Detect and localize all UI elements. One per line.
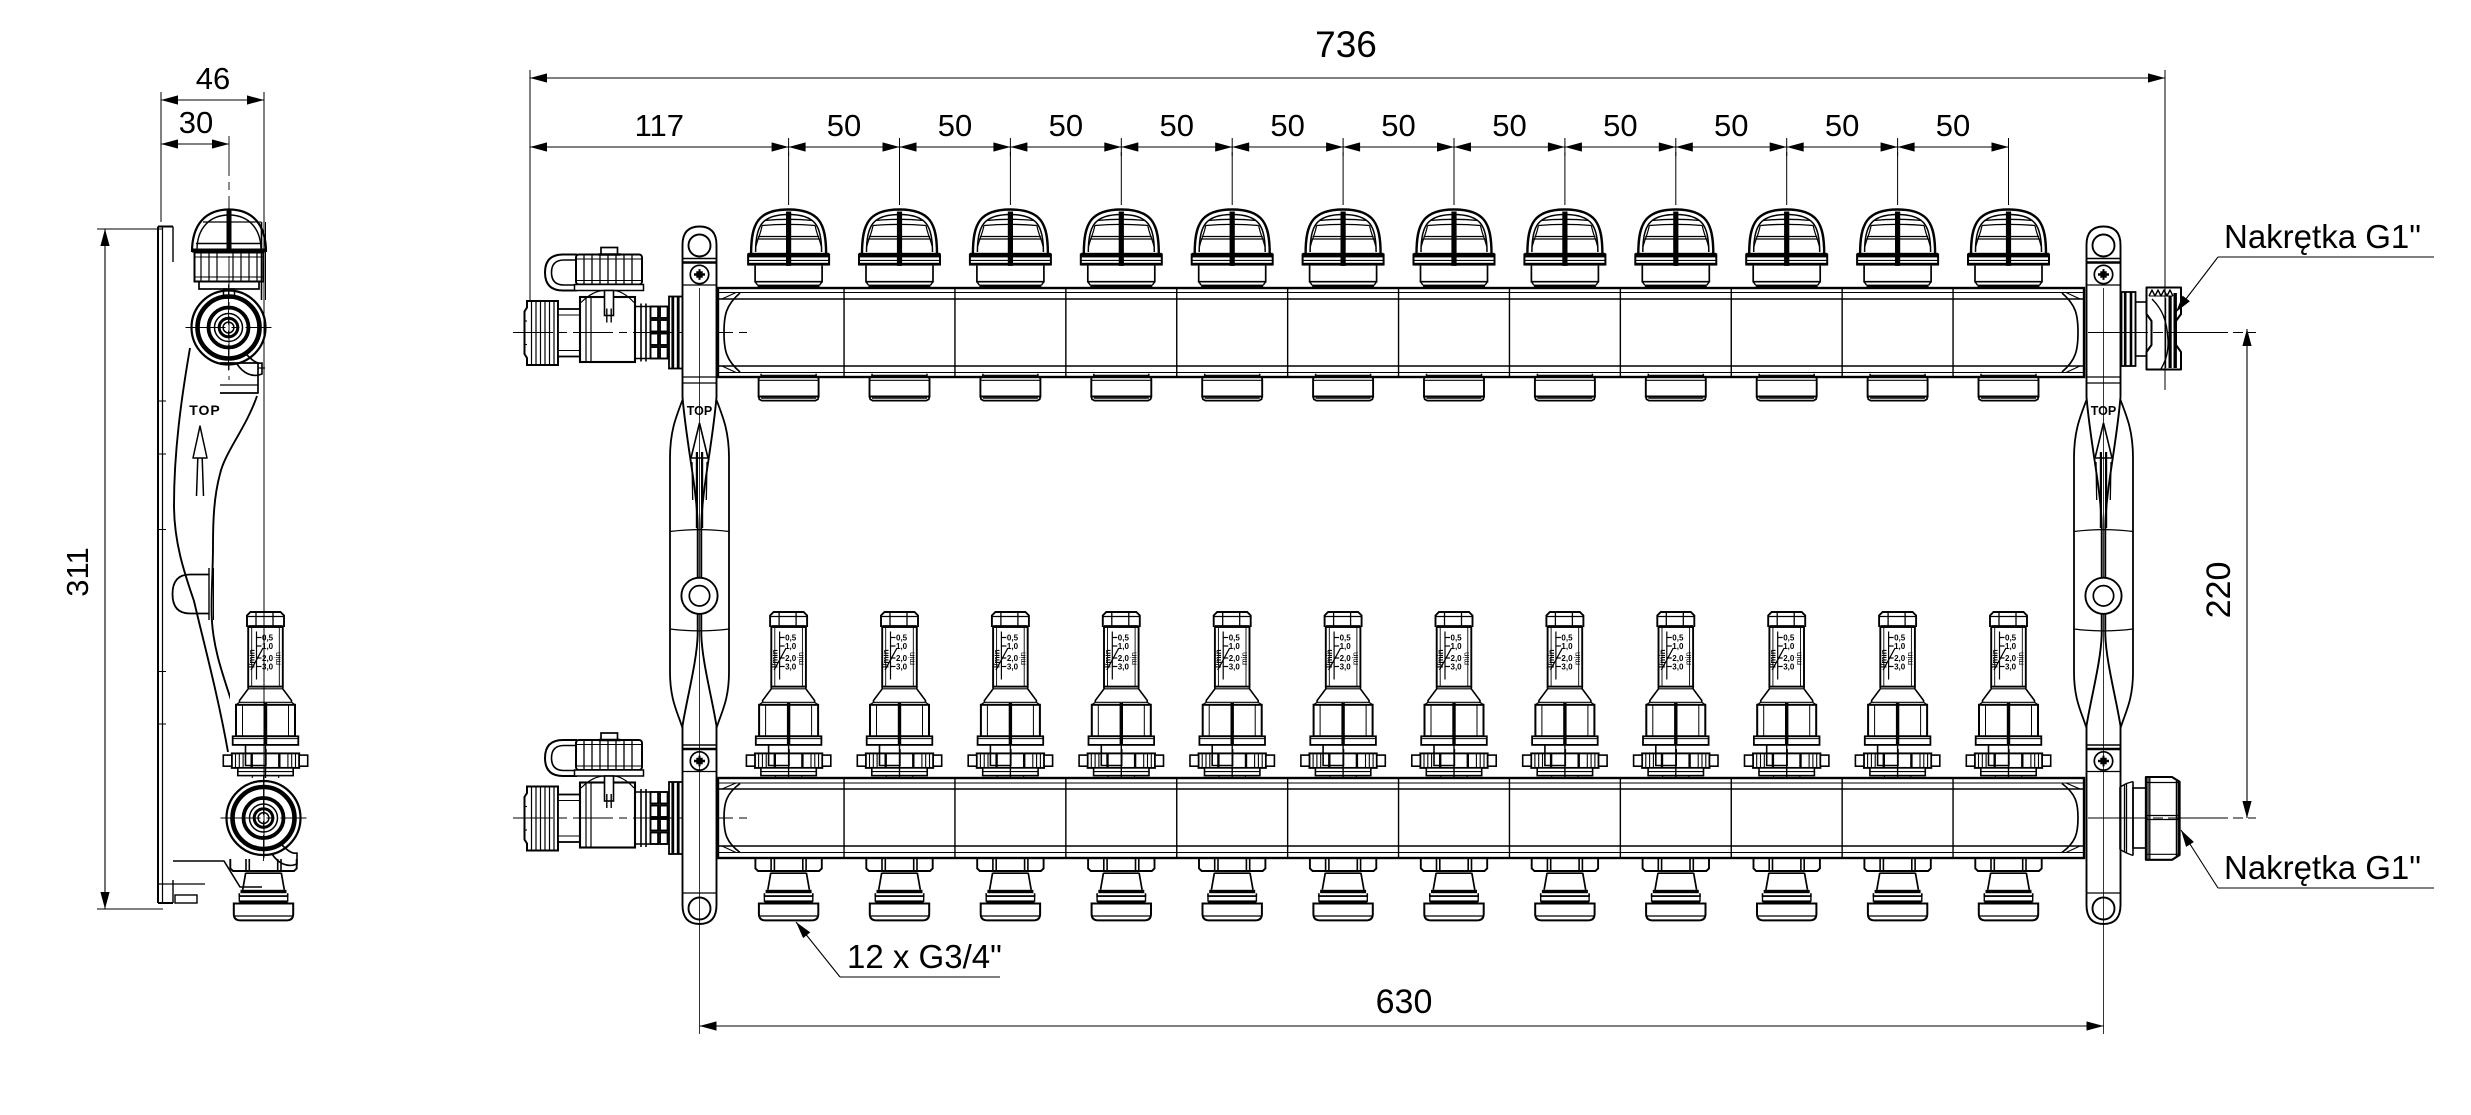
svg-text:Nakrętka G1": Nakrętka G1" [2224, 218, 2421, 255]
svg-text:50: 50 [1160, 108, 1194, 143]
svg-text:46: 46 [196, 61, 230, 96]
svg-text:311: 311 [60, 547, 95, 596]
svg-text:117: 117 [635, 108, 684, 143]
svg-text:630: 630 [1376, 983, 1433, 1021]
svg-text:50: 50 [1381, 108, 1415, 143]
svg-text:50: 50 [1825, 108, 1859, 143]
svg-text:TOP: TOP [189, 402, 221, 418]
svg-text:50: 50 [1049, 108, 1083, 143]
svg-text:50: 50 [827, 108, 861, 143]
svg-text:12 x G3/4": 12 x G3/4" [847, 938, 1002, 975]
svg-text:220: 220 [2200, 562, 2238, 619]
svg-text:50: 50 [1270, 108, 1304, 143]
svg-text:50: 50 [1492, 108, 1526, 143]
svg-text:50: 50 [1714, 108, 1748, 143]
svg-text:50: 50 [1936, 108, 1970, 143]
svg-text:736: 736 [1315, 24, 1377, 65]
svg-text:Nakrętka G1": Nakrętka G1" [2224, 849, 2421, 886]
svg-text:50: 50 [1603, 108, 1637, 143]
svg-text:50: 50 [938, 108, 972, 143]
svg-text:30: 30 [179, 105, 213, 140]
